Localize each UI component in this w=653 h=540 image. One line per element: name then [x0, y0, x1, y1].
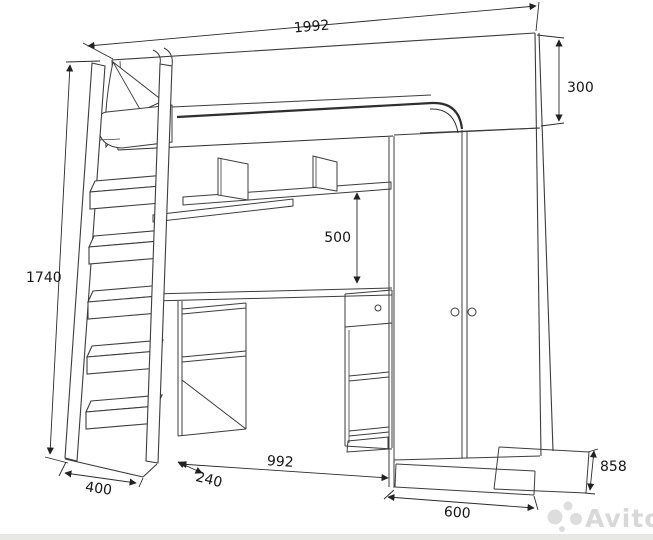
dim-label-unit-depth: 858	[600, 459, 627, 475]
dimension-unit-depth	[585, 449, 598, 494]
avito-watermark: Avito	[548, 502, 653, 534]
wardrobe	[389, 128, 589, 495]
shelf-divider-right	[313, 156, 337, 191]
dim-label-desk-width: 992	[266, 453, 294, 471]
loft-bed-technical-drawing: 1992 300 1740 500 992 240 400 600 858 Av…	[0, 0, 653, 540]
dim-label-top-width: 1992	[293, 17, 330, 36]
shelf-divider-left	[218, 158, 248, 200]
dim-label-headboard-height: 300	[567, 80, 594, 96]
drawer-unit	[345, 290, 392, 452]
door-knob-left	[451, 308, 459, 316]
dim-label-ladder-base-depth: 240	[194, 469, 224, 491]
dim-label-shelf-to-desk: 500	[324, 230, 351, 246]
desk-surface	[152, 288, 392, 301]
drawer-knob	[375, 305, 381, 311]
dim-label-ladder-base-width: 400	[84, 479, 113, 499]
corner-shelf-unit	[178, 301, 246, 436]
dim-label-wardrobe-width: 600	[443, 504, 471, 522]
lower-shelf-board	[153, 199, 293, 222]
dim-label-overall-height: 1740	[26, 270, 62, 286]
wall-shelf	[153, 156, 391, 222]
image-bottom-strip	[0, 534, 653, 540]
avito-text: Avito	[585, 504, 653, 533]
door-knob-right	[468, 308, 476, 316]
avito-logo-icon	[548, 502, 583, 533]
